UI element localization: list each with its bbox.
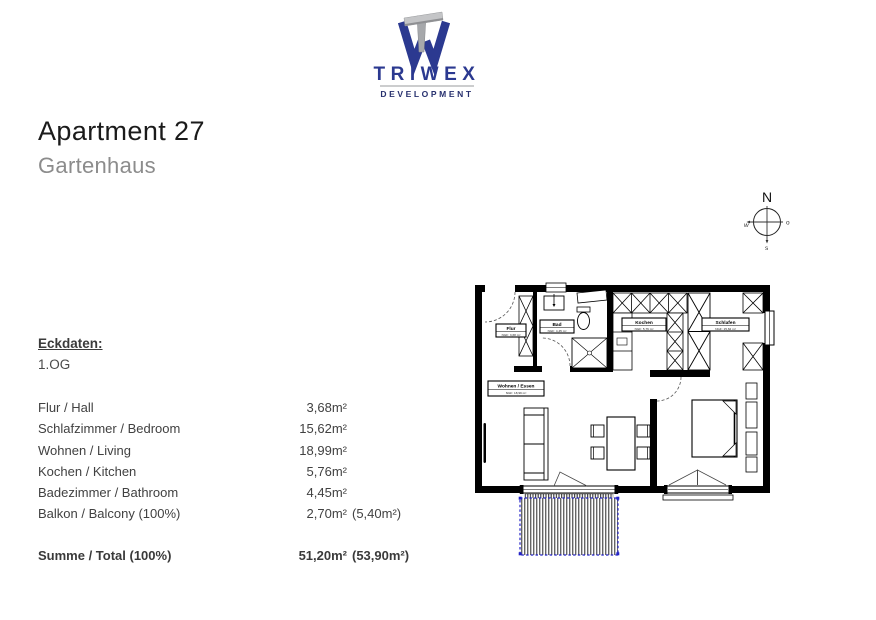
room-area-value: 4,45m² (268, 485, 347, 500)
plan-label-schlafen: Schlafen NGF: 15,62 m² (702, 318, 749, 331)
total-value: 51,20m² (268, 548, 347, 563)
page-subtitle: Gartenhaus (38, 153, 156, 179)
svg-text:NGF: 18,99 m²: NGF: 18,99 m² (506, 391, 526, 395)
room-area-value: 5,76m² (268, 464, 347, 479)
floor-label: 1.OG (38, 357, 70, 372)
room-label: Kochen / Kitchen (38, 464, 268, 479)
svg-text:NGF: 4,45 m²: NGF: 4,45 m² (548, 329, 567, 333)
svg-text:Wohnen / Essen: Wohnen / Essen (498, 384, 535, 390)
svg-text:Flur: Flur (506, 326, 515, 332)
bed (692, 400, 737, 457)
triwex-monogram-icon (402, 12, 446, 62)
balcony (519, 497, 620, 556)
total-row: Summe / Total (100%) 51,20m² (53,90m²) (38, 548, 458, 563)
table-row: Schlafzimmer / Bedroom 15,62m² (38, 421, 458, 442)
compass-icon: N w o s (740, 186, 794, 252)
dining-set (591, 417, 650, 470)
svg-text:Bad: Bad (552, 322, 561, 328)
room-label: Schlafzimmer / Bedroom (38, 421, 268, 436)
page-title: Apartment 27 (38, 116, 205, 147)
radiator (484, 423, 487, 463)
svg-text:Schlafen: Schlafen (716, 320, 736, 326)
plan-label-kochen: Kochen NGF: 5,76 m² (622, 318, 666, 331)
table-row: Flur / Hall 3,68m² (38, 400, 458, 421)
table-row: Balkon / Balcony (100%) 2,70m² (5,40m²) (38, 506, 458, 527)
room-area-extra: (5,40m²) (352, 506, 401, 521)
triwex-logo: TRIWEX DEVELOPMENT (362, 8, 492, 108)
toilet (578, 313, 590, 330)
svg-text:NGF: 5,76 m²: NGF: 5,76 m² (635, 327, 654, 331)
room-label: Flur / Hall (38, 400, 268, 415)
room-label: Balkon / Balcony (100%) (38, 506, 268, 521)
room-label: Badezimmer / Bathroom (38, 485, 268, 500)
room-area-value: 3,68m² (268, 400, 347, 415)
living-furniture (484, 408, 651, 480)
compass-north-label: N (762, 189, 772, 205)
svg-text:NGF: 15,62 m²: NGF: 15,62 m² (715, 327, 735, 331)
logo-tagline: DEVELOPMENT (380, 89, 473, 99)
room-area-value: 18,99m² (268, 443, 347, 458)
compass-south-label: s (765, 245, 769, 252)
shower (572, 338, 607, 368)
toilet-tank (577, 307, 590, 312)
total-extra: (53,90m²) (352, 548, 409, 563)
logo-wordmark: TRIWEX (374, 64, 481, 85)
eckdaten-heading: Eckdaten: (38, 336, 103, 351)
floorplan-drawing: Flur NGF: 3,68 m² Bad NGF: 4,45 m² Koche… (470, 280, 780, 565)
room-area-value: 2,70m² (268, 506, 347, 521)
plan-label-flur: Flur NGF: 3,68 m² (496, 324, 526, 337)
plan-label-wohnen: Wohnen / Essen NGF: 18,99 m² (488, 381, 544, 396)
window-bedroom (663, 470, 733, 500)
room-label: Wohnen / Living (38, 443, 268, 458)
total-label: Summe / Total (100%) (38, 548, 268, 563)
dining-table (607, 417, 635, 470)
room-area-value: 15,62m² (268, 421, 347, 436)
table-row: Kochen / Kitchen 5,76m² (38, 464, 458, 485)
compass-west-label: w (744, 222, 750, 229)
floorplan-sheet: TRIWEX DEVELOPMENT Apartment 27 Gartenha… (0, 0, 876, 620)
table-row: Wohnen / Living 18,99m² (38, 443, 458, 464)
svg-text:NGF: 3,68 m²: NGF: 3,68 m² (502, 333, 521, 337)
table-row: Badezimmer / Bathroom 4,45m² (38, 485, 458, 506)
window-right (765, 311, 774, 345)
svg-text:Kochen: Kochen (635, 320, 653, 326)
plan-label-bad: Bad NGF: 4,45 m² (540, 320, 574, 333)
sofa (524, 408, 548, 480)
compass-east-label: o (786, 220, 790, 227)
room-area-table: Flur / Hall 3,68m² Schlafzimmer / Bedroo… (38, 400, 458, 528)
